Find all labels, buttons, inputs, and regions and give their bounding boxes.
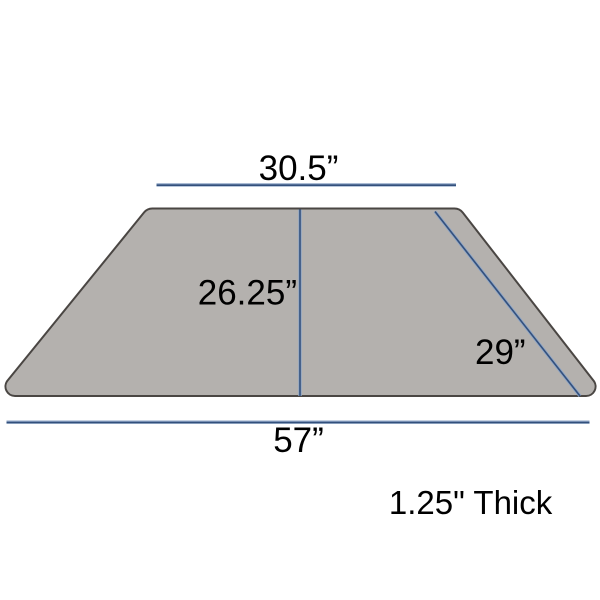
svg-text:26.25”: 26.25”: [198, 274, 297, 313]
svg-text:1.25" Thick: 1.25" Thick: [389, 484, 553, 521]
svg-text:30.5”: 30.5”: [259, 149, 339, 188]
svg-text:29”: 29”: [475, 333, 526, 372]
svg-text:57”: 57”: [273, 421, 324, 460]
